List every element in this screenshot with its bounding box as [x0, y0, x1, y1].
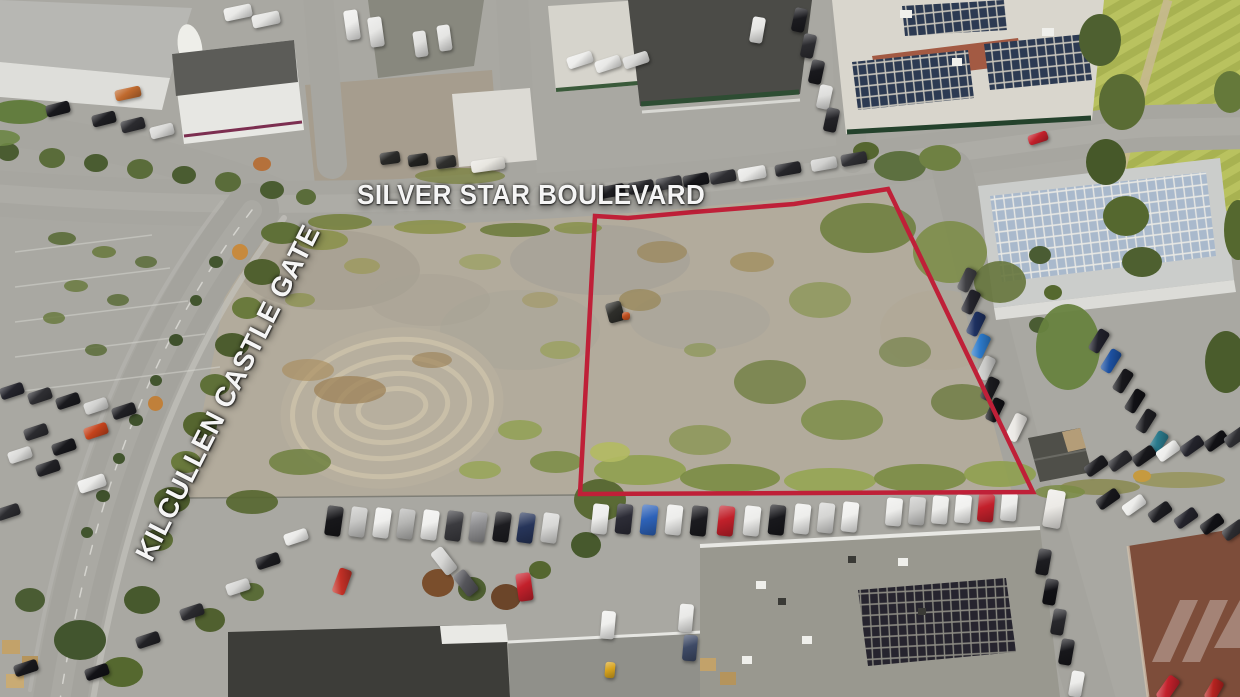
vehicle	[251, 10, 281, 29]
vehicle	[179, 603, 206, 622]
vehicle	[1203, 677, 1224, 697]
vehicle	[614, 503, 633, 535]
vehicle	[840, 151, 868, 167]
vehicle	[1057, 638, 1074, 666]
vehicle	[255, 552, 282, 571]
vehicle	[1135, 408, 1158, 435]
vehicle	[799, 33, 817, 59]
vehicle	[590, 503, 609, 535]
vehicle	[27, 387, 54, 406]
vehicle	[622, 312, 630, 320]
vehicle	[45, 100, 71, 117]
vehicle	[1112, 368, 1135, 395]
vehicle	[1147, 500, 1174, 524]
vehicle	[348, 506, 368, 538]
vehicle	[83, 422, 110, 441]
vehicle	[372, 507, 392, 539]
vehicle	[954, 494, 972, 523]
vehicle	[1131, 444, 1158, 468]
vehicle	[594, 54, 622, 73]
vehicle	[1100, 348, 1123, 375]
vehicle	[84, 663, 111, 682]
vehicle	[55, 392, 82, 411]
vehicle	[1107, 449, 1134, 473]
vehicle	[1083, 454, 1110, 478]
vehicle	[566, 50, 594, 69]
vehicle	[470, 157, 505, 174]
vehicle	[91, 110, 117, 127]
vehicle	[412, 30, 428, 58]
vehicle	[682, 634, 698, 661]
vehicle	[283, 528, 310, 547]
vehicle	[774, 161, 802, 177]
vehicle	[1223, 425, 1240, 449]
vehicle	[379, 151, 400, 166]
vehicle	[810, 156, 838, 172]
vehicle	[816, 502, 835, 534]
vehicle	[435, 155, 456, 170]
vehicle	[343, 9, 361, 41]
vehicle	[807, 59, 825, 85]
vehicle	[600, 610, 616, 639]
vehicle	[977, 493, 995, 522]
vehicle	[396, 508, 416, 540]
vehicle	[23, 423, 50, 442]
watermark-logo	[1140, 592, 1240, 670]
vehicle	[0, 382, 25, 401]
vehicle	[716, 505, 735, 537]
vehicle	[822, 107, 840, 133]
vehicle	[815, 84, 833, 110]
vehicle	[931, 495, 949, 524]
vehicle	[7, 446, 34, 465]
vehicle	[1004, 412, 1028, 443]
vehicle	[1124, 388, 1147, 415]
vehicle	[748, 16, 765, 44]
vehicle	[77, 472, 108, 493]
vehicle	[1027, 130, 1049, 146]
vehicle	[0, 503, 21, 522]
vehicle	[225, 578, 252, 597]
vehicle	[114, 85, 142, 101]
vehicle	[790, 7, 808, 33]
vehicle	[420, 509, 440, 541]
vehicle	[742, 505, 761, 537]
vehicle	[678, 603, 694, 632]
vehicle	[149, 122, 175, 139]
vehicle	[908, 496, 926, 525]
vehicle	[492, 511, 512, 543]
vehicle	[452, 568, 479, 597]
vehicle	[436, 24, 452, 52]
vehicle	[1042, 489, 1066, 530]
aerial-photo: SILVER STAR BOULEVARD KILCULLEN CASTLE G…	[0, 0, 1240, 697]
vehicle	[622, 50, 650, 69]
vehicle	[1095, 487, 1122, 511]
vehicle	[1179, 434, 1206, 458]
vehicle	[1088, 328, 1111, 355]
street-label-silver-star-boulevard: SILVER STAR BOULEVARD	[357, 179, 705, 211]
vehicle	[35, 459, 62, 478]
vehicle	[709, 169, 737, 185]
vehicle	[515, 572, 534, 602]
vehicle	[1155, 674, 1181, 697]
vehicle	[367, 16, 385, 48]
vehicle	[1067, 670, 1084, 697]
vehicle	[1034, 548, 1051, 576]
vehicle	[604, 662, 615, 679]
vehicle	[540, 512, 560, 544]
vehicles-layer	[0, 0, 1240, 697]
vehicle	[135, 631, 162, 650]
vehicle	[430, 546, 458, 577]
vehicle	[516, 512, 536, 544]
vehicle	[111, 402, 138, 421]
vehicle	[1173, 506, 1200, 530]
vehicle	[120, 116, 146, 133]
vehicle	[664, 504, 683, 536]
vehicle	[840, 501, 859, 533]
vehicle	[639, 504, 658, 536]
vehicle	[792, 503, 811, 535]
vehicle	[331, 567, 352, 596]
vehicle	[13, 659, 40, 678]
vehicle	[324, 505, 344, 537]
vehicle	[767, 504, 786, 536]
vehicle	[1041, 578, 1058, 606]
vehicle	[1000, 492, 1018, 521]
vehicle	[83, 397, 110, 416]
vehicle	[407, 153, 428, 168]
vehicle	[1049, 608, 1066, 636]
vehicle	[689, 505, 708, 537]
vehicle	[737, 164, 767, 182]
vehicle	[468, 511, 488, 543]
vehicle	[51, 438, 78, 457]
vehicle	[885, 497, 903, 526]
vehicle	[444, 510, 464, 542]
vehicle	[1121, 493, 1148, 517]
vehicle	[223, 3, 253, 22]
